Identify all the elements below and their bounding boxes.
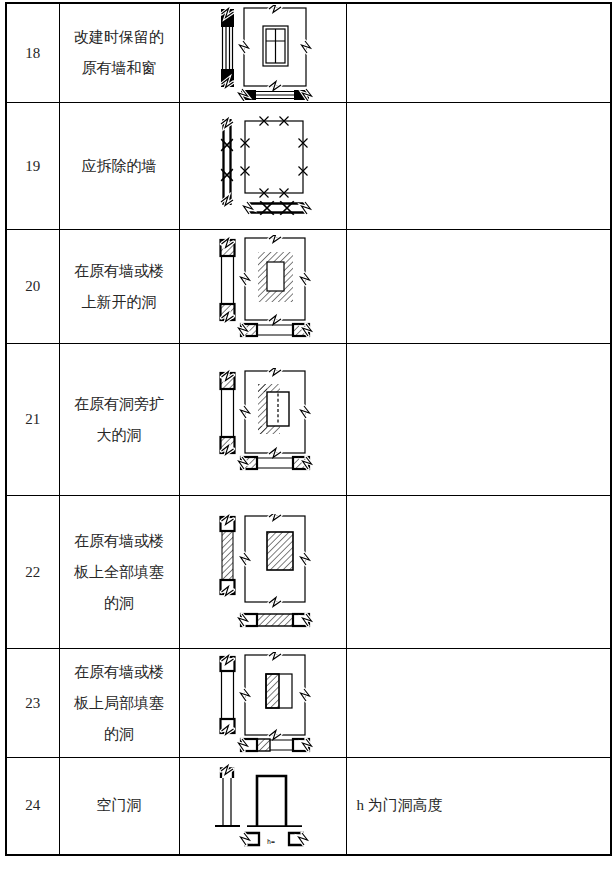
elevation-view	[240, 117, 307, 198]
plan-view: h=	[240, 833, 307, 846]
page: { "table": { "rows": [ {"no":"18","name"…	[0, 0, 615, 871]
wall-section-left	[220, 656, 234, 735]
symbol-name: 在原有墙或楼 上新开的洞	[59, 230, 179, 344]
retained-wall-and-window-icon	[211, 5, 315, 101]
table-row: 22 在原有墙或楼 板上全部填塞 的洞	[6, 496, 611, 649]
elevation-view	[240, 235, 309, 325]
wall-section-left	[220, 516, 234, 596]
elevation-view	[240, 514, 309, 607]
row-number: 19	[6, 103, 59, 230]
row-number: 18	[6, 3, 59, 103]
row-note	[346, 496, 611, 649]
row-note	[346, 3, 611, 103]
row-number: 21	[6, 344, 59, 496]
table-row: 21 在原有洞旁扩 大的洞	[6, 344, 611, 496]
elevation-view	[239, 5, 310, 91]
elevation-view	[247, 776, 302, 826]
table-row: 19 应拆除的墙	[6, 103, 611, 230]
row-note	[346, 344, 611, 496]
symbol-name: 在原有墙或楼 板上全部填塞 的洞	[59, 496, 179, 649]
elevation-view	[240, 368, 309, 458]
table-row: 20 在原有墙或楼 上新开的洞	[6, 230, 611, 344]
row-number: 24	[6, 758, 59, 855]
row-number: 22	[6, 496, 59, 649]
wall-section-left	[220, 238, 234, 321]
wall-section-left	[221, 9, 234, 88]
new-opening-icon	[211, 235, 315, 339]
plan-view	[243, 201, 310, 215]
wall-section-left	[221, 119, 233, 206]
plan-view	[238, 457, 311, 469]
table-row: 18 改建时保留的 原有墙和窗	[6, 3, 611, 103]
plan-view	[238, 324, 311, 336]
wall-to-be-demolished-icon	[211, 115, 315, 217]
row-note: h 为门洞高度	[346, 758, 611, 855]
door-height-label: h=	[267, 838, 275, 846]
row-note	[346, 649, 611, 758]
symbol-diagram-cell	[179, 230, 346, 344]
symbol-name: 空门洞	[59, 758, 179, 855]
elevation-view	[240, 652, 309, 740]
symbol-name: 在原有墙或楼 板上局部填塞 的洞	[59, 649, 179, 758]
row-number: 20	[6, 230, 59, 344]
symbol-name: 应拆除的墙	[59, 103, 179, 230]
plan-view	[238, 614, 311, 626]
symbol-diagram-cell	[179, 344, 346, 496]
symbol-diagram-cell	[179, 3, 346, 103]
wall-section-left	[215, 765, 240, 826]
enlarged-opening-icon	[211, 368, 315, 472]
symbol-diagram-cell	[179, 103, 346, 230]
symbol-diagram-cell: h=	[179, 758, 346, 855]
plan-view	[238, 739, 311, 751]
table-row: 24 空门洞 h=	[6, 758, 611, 855]
row-note	[346, 103, 611, 230]
fully-infilled-opening-icon	[211, 514, 315, 630]
symbol-diagram-cell	[179, 649, 346, 758]
row-note	[346, 230, 611, 344]
row-number: 23	[6, 649, 59, 758]
symbol-name: 在原有洞旁扩 大的洞	[59, 344, 179, 496]
partially-infilled-opening-icon	[211, 652, 315, 754]
table-row: 23 在原有墙或楼 板上局部填塞 的洞	[6, 649, 611, 758]
empty-door-opening-icon: h=	[211, 763, 315, 849]
wall-section-left	[220, 371, 234, 454]
legend-symbol-table: 18 改建时保留的 原有墙和窗	[5, 2, 612, 856]
symbol-name: 改建时保留的 原有墙和窗	[59, 3, 179, 103]
symbol-diagram-cell	[179, 496, 346, 649]
